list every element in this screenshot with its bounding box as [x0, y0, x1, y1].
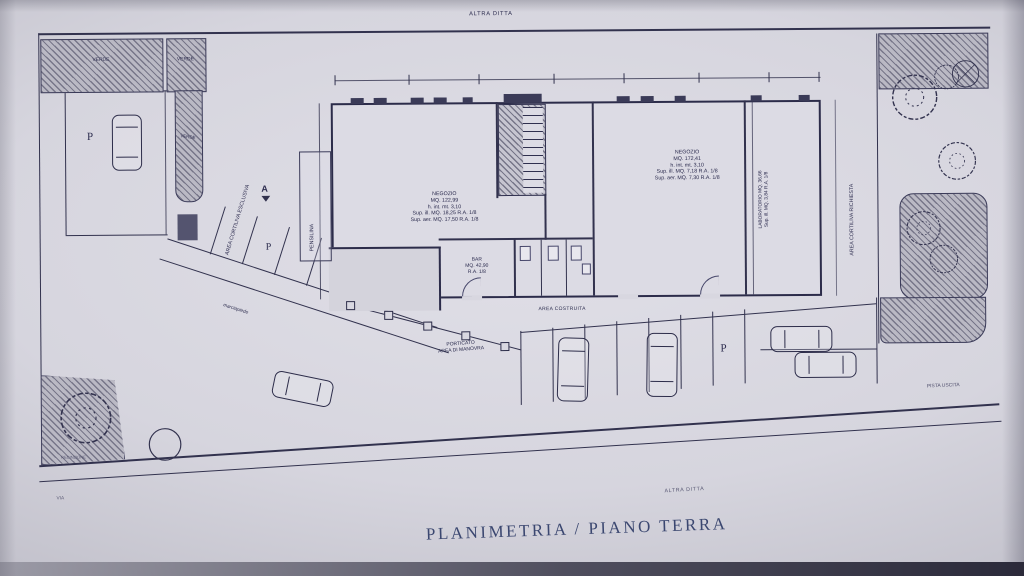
stall-line — [712, 312, 714, 386]
porticato-label: PORTICATO AREA DI MANOVRA — [432, 338, 490, 354]
stall-line — [616, 321, 618, 395]
road-edge-2 — [39, 421, 1001, 483]
stair-steps — [523, 107, 544, 193]
facade-pillar — [351, 98, 364, 104]
area-cortiliva-richiesta-label: AREA CORTILIVA RICHIESTA — [848, 184, 854, 256]
dim-tick — [768, 72, 769, 82]
recinzione-label: RECINZIONE — [61, 455, 86, 460]
tree-icon — [937, 141, 977, 181]
column — [423, 322, 432, 331]
pensilina-canopy — [299, 151, 332, 261]
area-cortiliva-esclusiva-label: AREA CORTILIVA ESCLUSIVA — [224, 184, 251, 256]
stall-line — [744, 309, 746, 383]
green-area-topmid — [166, 38, 206, 92]
parking-letter: P — [266, 242, 272, 253]
facade-pillar — [411, 98, 424, 104]
car-icon — [646, 333, 678, 397]
column — [500, 342, 509, 351]
site-plan-photo: A ALTRA DITTA VERDE VERDE VERDE P P P AR… — [0, 0, 1024, 576]
tree-icon — [905, 210, 941, 246]
pensilina-label: PENSILINA — [309, 224, 315, 252]
boundary-top-line — [38, 27, 990, 35]
room-annotation-laboratorio: LABORATORIO MQ. 36,66 Sup. ill. MQ. 3,84… — [757, 159, 769, 241]
green-label: VERDE — [63, 56, 138, 62]
stall-divider — [210, 206, 226, 254]
stall-line — [552, 328, 554, 402]
parking-letter: P — [720, 343, 726, 355]
room-annotation-negozio-left: NEGOZIO MQ. 122,99 h. int. mt. 3,10 Sup.… — [392, 190, 498, 223]
stall-line — [520, 331, 522, 405]
facade-pillar — [434, 97, 447, 103]
tree-icon — [929, 244, 959, 274]
green-strip-left — [175, 90, 204, 202]
stall-divider — [242, 216, 258, 264]
stall-line — [680, 315, 682, 389]
facade-pillar — [799, 95, 810, 101]
car-icon — [770, 326, 832, 352]
wc-fixture — [520, 246, 531, 261]
dim-tick — [409, 75, 410, 85]
stair-ramp-block — [498, 104, 547, 196]
room-sup-aer: Sup. aer. MQ. 7,30 R.A. 1/8 — [634, 174, 740, 181]
car-icon — [112, 115, 142, 171]
utility-block — [177, 214, 197, 240]
room-ratio: R.A. 1/8 — [454, 268, 500, 274]
facade-entry-band — [504, 94, 542, 103]
dimension-line-right — [835, 100, 837, 296]
boundary-label-top: ALTRA DITTA — [444, 10, 538, 17]
section-marker-label: A — [261, 184, 268, 194]
wc-fixture — [571, 246, 582, 261]
room-sup-ill: Sup. ill. MQ. 3,84 R.A. 1/8 — [763, 159, 769, 241]
dim-tick — [335, 75, 336, 85]
column — [384, 311, 393, 320]
dim-tick — [624, 73, 625, 83]
facade-pillar — [374, 98, 387, 104]
section-marker-arrow — [261, 196, 270, 202]
dim-tick — [699, 73, 700, 83]
floor-plan-drawing: A ALTRA DITTA VERDE VERDE VERDE P P P AR… — [0, 0, 1024, 576]
parking-right-line — [165, 90, 167, 234]
car-icon — [557, 337, 590, 402]
dim-tick — [818, 72, 819, 82]
wc-fixture — [582, 263, 591, 274]
facade-pillar — [617, 96, 630, 102]
door-opening — [618, 294, 638, 299]
stall-divider — [274, 227, 290, 275]
dim-tick — [479, 74, 480, 84]
parking-bottom-line — [66, 234, 168, 236]
via-label: VIA — [56, 495, 64, 500]
room-annotation-bar: BAR MQ. 42,90 R.A. 1/8 — [454, 256, 500, 274]
facade-pillar — [675, 96, 686, 102]
tree-icon — [59, 391, 113, 445]
wall — [544, 194, 546, 240]
green-area-topleft — [40, 38, 163, 93]
quartered-tree-icon — [950, 59, 980, 89]
car-icon — [271, 370, 335, 409]
tree-icon — [891, 73, 939, 121]
parking-letter: P — [87, 131, 93, 143]
sheet-title: PLANIMETRIA / PIANO TERRA — [426, 515, 697, 544]
facade-pillar — [751, 95, 762, 101]
parking-left-line — [65, 91, 67, 235]
manhole-circle-icon — [147, 426, 183, 462]
area-costruita-label: AREA COSTRUITA — [525, 305, 599, 311]
photo-shade-bottom — [0, 562, 1024, 576]
marciapiede-label: marciapiede — [222, 302, 249, 315]
column — [346, 301, 355, 310]
green-label: VERDE — [174, 56, 198, 62]
dim-tick — [554, 74, 555, 84]
wc-fixture — [548, 246, 559, 261]
road-edge-1 — [39, 403, 999, 467]
green-area-right-lower — [880, 297, 986, 344]
facade-pillar — [463, 97, 473, 103]
dimension-line-top — [335, 77, 821, 81]
pista-uscita-label: PISTA USCITA — [927, 382, 960, 389]
facade-pillar — [641, 96, 654, 102]
boundary-label-bottom: ALTRA DITTA — [641, 484, 727, 495]
room-annotation-negozio-right: NEGOZIO MQ. 172,41 h. int. mt. 3,10 Sup.… — [634, 148, 740, 181]
car-icon — [794, 352, 856, 378]
room-sup-aer: Sup. aer. MQ. 17,50 R.A. 1/8 — [392, 216, 498, 223]
